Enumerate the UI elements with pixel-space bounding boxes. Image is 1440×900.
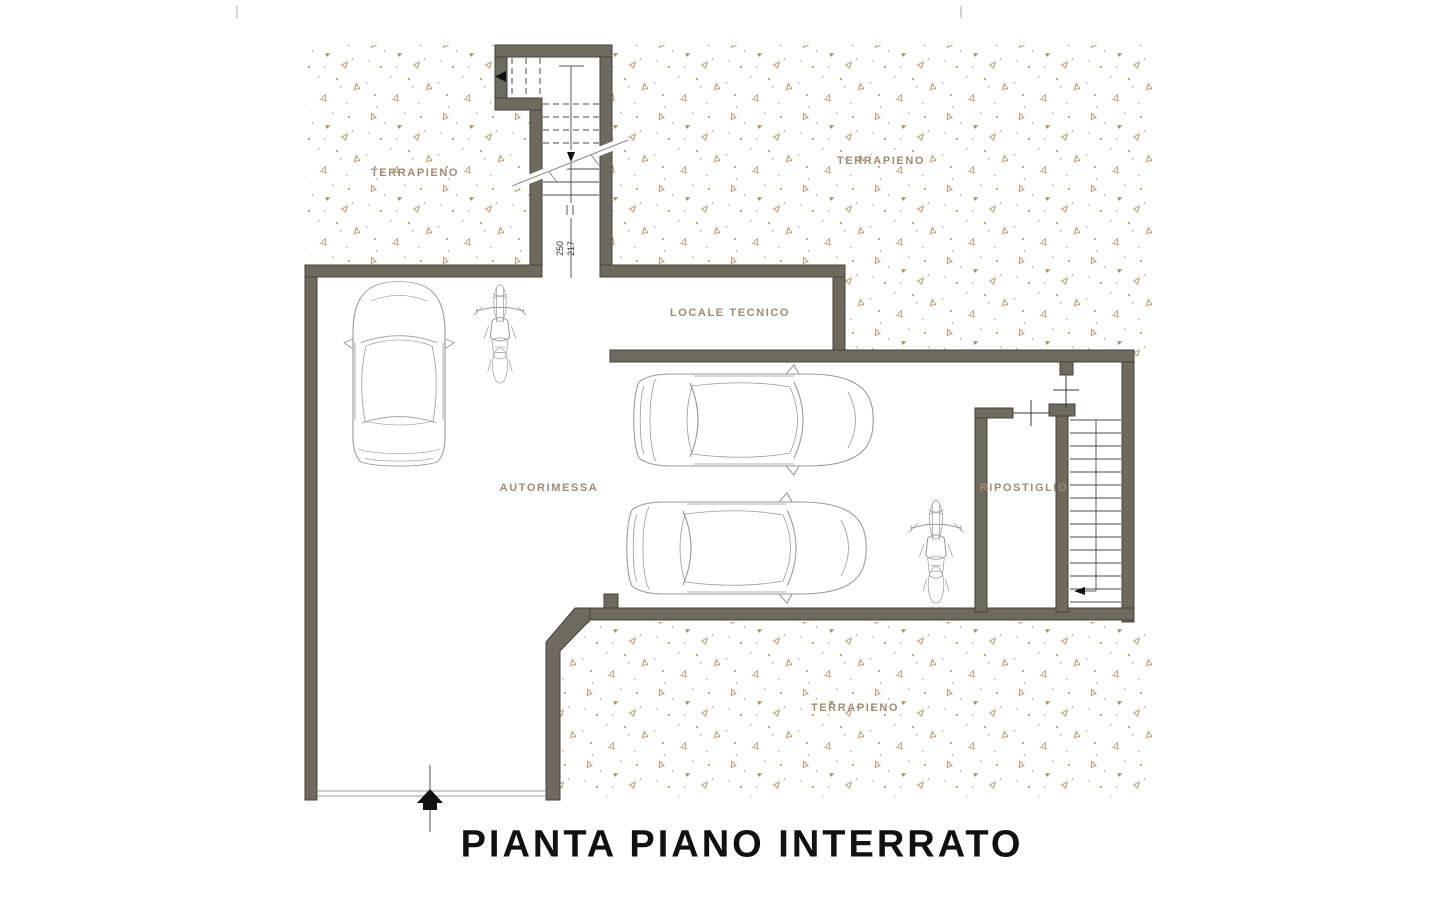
motorcycle-icon xyxy=(474,285,527,384)
car-icon xyxy=(634,365,874,475)
stair-dimension-text: 217 xyxy=(566,241,576,256)
room-label-terrapieno-top-right: TERRAPIENO xyxy=(837,155,925,167)
floor-plan: 250 217 xyxy=(0,0,1440,900)
entrance-arrow-icon xyxy=(417,765,443,832)
room-label-locale-tecnico: LOCALE TECNICO xyxy=(670,307,790,319)
room-label-ripostiglio: RIPOSTIGLIO xyxy=(980,482,1069,494)
stair-dimension-text: 250 xyxy=(555,241,565,256)
room-label-autorimessa: AUTORIMESSA xyxy=(500,482,599,494)
car-icon xyxy=(627,493,867,603)
room-label-terrapieno-top-left: TERRAPIENO xyxy=(371,167,459,179)
stairs-right xyxy=(1070,420,1121,602)
walk-line-arrow-icon xyxy=(1074,587,1085,595)
room-label-terrapieno-bottom: TERRAPIENO xyxy=(811,702,899,714)
door-symbol xyxy=(1053,375,1079,408)
floor-plan-drawing: 250 217 xyxy=(0,0,1440,900)
car-icon xyxy=(344,282,454,466)
door-symbol xyxy=(1013,400,1049,426)
page-title: PIANTA PIANO INTERRATO xyxy=(461,824,1024,867)
motorcycle-icon xyxy=(908,500,963,603)
